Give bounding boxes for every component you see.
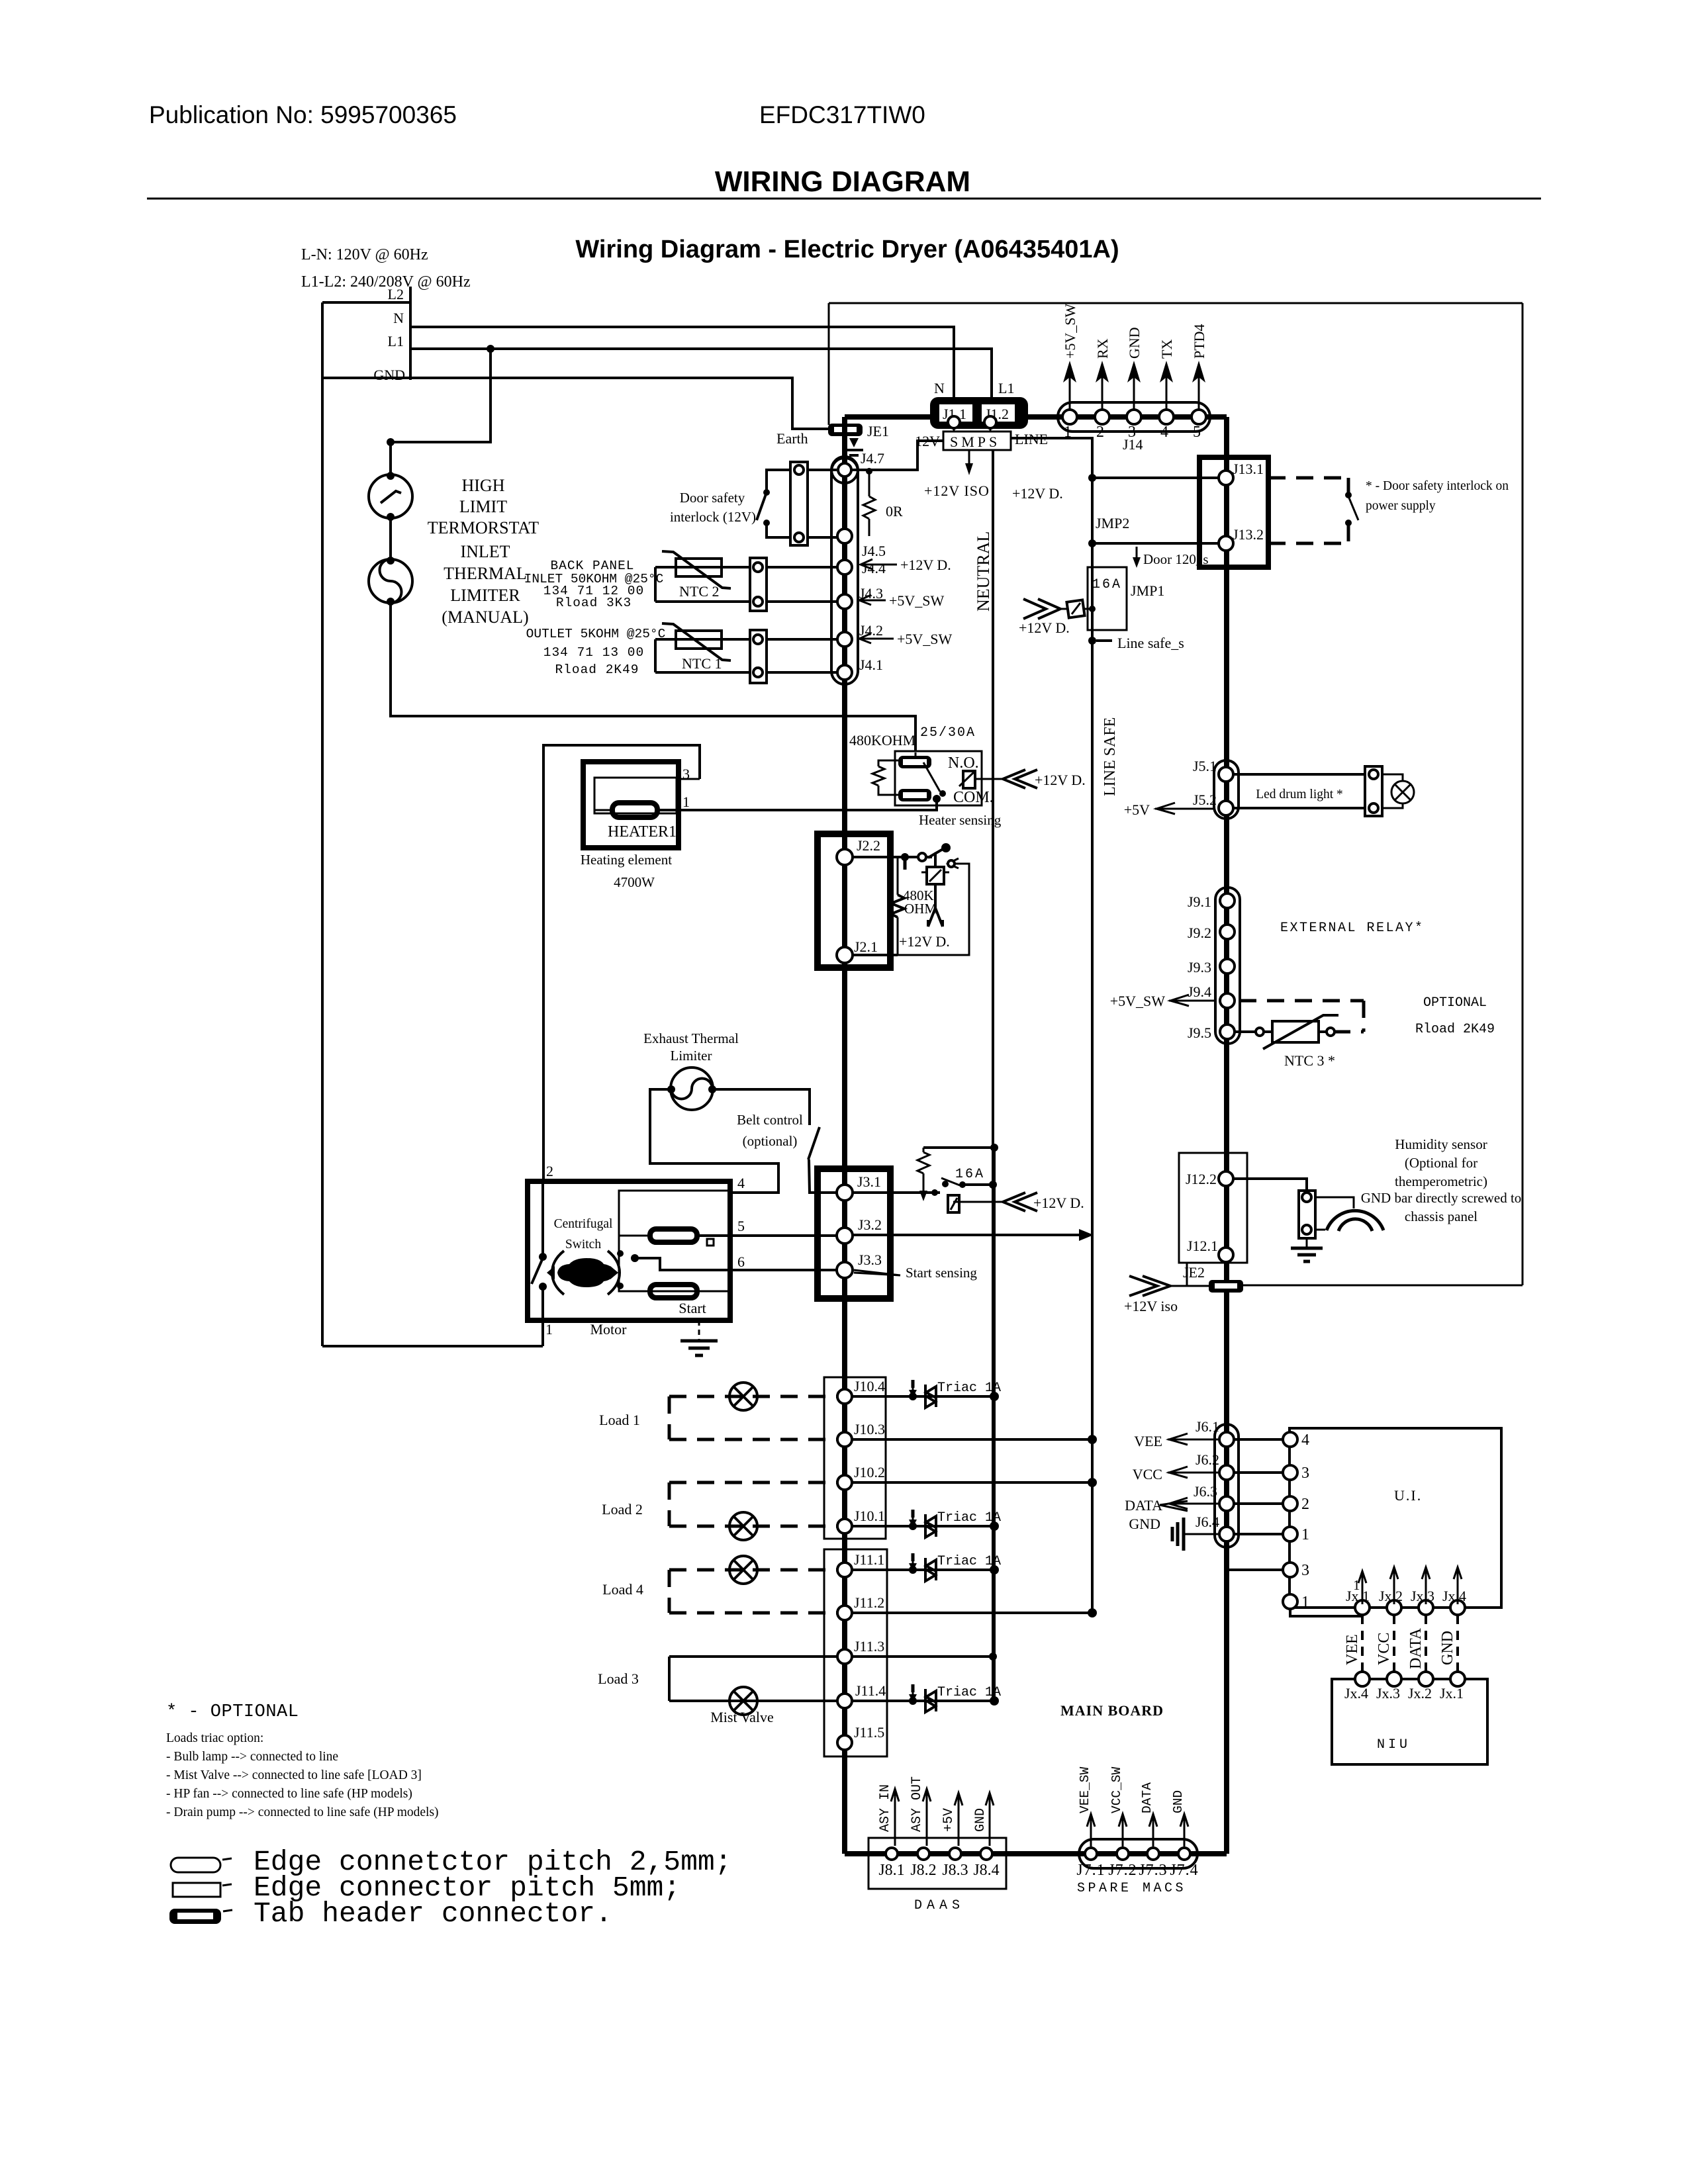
svg-text:+5V_SW: +5V_SW [1062,303,1078,359]
svg-text:1: 1 [682,794,690,810]
svg-text:BACK PANEL: BACK PANEL [550,559,634,573]
svg-text:GND: GND [1129,1516,1160,1532]
svg-text:+12V D.: +12V D. [1035,772,1086,788]
svg-text:J4.5: J4.5 [862,543,886,559]
svg-text:L1: L1 [998,380,1014,396]
svg-text:GND: GND [973,1808,988,1832]
svg-text:25/30A: 25/30A [920,725,976,741]
svg-text:16A: 16A [1092,577,1122,592]
svg-text:1: 1 [1301,1594,1309,1611]
svg-text:J9.3: J9.3 [1188,959,1211,976]
svg-text:J8.3: J8.3 [942,1862,968,1879]
svg-text:5: 5 [1193,424,1201,441]
svg-text:interlock (12V): interlock (12V) [670,509,756,525]
svg-text:Tab header connector.: Tab header connector. [254,1897,612,1930]
svg-text:JMP2: JMP2 [1096,515,1129,531]
svg-text:GND: GND [1171,1790,1186,1813]
svg-text:Wiring Diagram - Electric Drye: Wiring Diagram - Electric Dryer (A064354… [575,236,1119,263]
svg-text:Exhaust Thermal: Exhaust Thermal [643,1030,739,1046]
svg-text:5: 5 [737,1218,745,1234]
svg-text:Load 3: Load 3 [598,1670,639,1687]
svg-text:J8.4: J8.4 [973,1862,999,1879]
svg-text:+5V: +5V [1124,801,1150,818]
svg-text:J2.2: J2.2 [857,837,880,854]
svg-text:J3.3: J3.3 [858,1251,882,1268]
svg-text:SPARE MACS: SPARE MACS [1077,1881,1186,1896]
svg-text:Mist Valve: Mist Valve [710,1709,774,1725]
svg-text:(Optional for: (Optional for [1405,1155,1477,1171]
svg-text:VEE_SW: VEE_SW [1078,1766,1092,1813]
svg-text:(optional): (optional) [743,1133,798,1149]
svg-text:J13.1: J13.1 [1233,461,1264,477]
svg-text:Switch: Switch [565,1238,601,1251]
svg-text:Triac 1A: Triac 1A [937,1510,1001,1525]
svg-text:2: 2 [546,1163,553,1179]
svg-text:N: N [934,380,945,396]
svg-text:+5V: +5V [941,1808,957,1832]
svg-text:134 71 13 00: 134 71 13 00 [543,645,644,660]
svg-text:+12V ISO: +12V ISO [924,482,990,499]
svg-text:LINE SAFE: LINE SAFE [1102,717,1119,796]
svg-text:Limiter: Limiter [671,1048,712,1064]
svg-text:2: 2 [1096,424,1104,441]
svg-text:GND: GND [1439,1631,1456,1665]
svg-text:Centrifugal: Centrifugal [554,1217,613,1231]
svg-text:J7.2: J7.2 [1108,1862,1137,1879]
svg-text:power supply: power supply [1366,499,1436,513]
svg-text:J9.5: J9.5 [1188,1024,1211,1041]
svg-text:LIMITER: LIMITER [450,586,520,605]
svg-text:NTC 1: NTC 1 [682,655,722,672]
svg-text:16A: 16A [955,1167,985,1182]
svg-text:Rload 3K3: Rload 3K3 [556,596,632,610]
svg-text:J9.4: J9.4 [1188,983,1211,1000]
svg-text:INLET: INLET [460,542,510,561]
svg-text:J8.2: J8.2 [910,1862,936,1879]
svg-text:Start sensing: Start sensing [906,1265,977,1281]
svg-text:Humidity sensor: Humidity sensor [1395,1136,1487,1152]
svg-text:4: 4 [1160,424,1168,441]
svg-text:VCC_SW: VCC_SW [1109,1766,1124,1813]
svg-text:themperometric): themperometric) [1395,1173,1487,1189]
svg-text:Load 1: Load 1 [599,1412,640,1428]
svg-text:J10.3: J10.3 [854,1421,885,1437]
svg-text:* - Door safety interlock on: * - Door safety interlock on [1366,479,1509,493]
svg-text:12V: 12V [915,433,940,449]
svg-text:J9.2: J9.2 [1188,925,1211,941]
svg-text:J10.1: J10.1 [854,1508,885,1524]
svg-text:J2.1: J2.1 [854,938,878,955]
svg-text:J5.2: J5.2 [1193,792,1217,808]
svg-text:Door safety: Door safety [680,490,745,506]
svg-text:RX: RX [1094,338,1111,359]
svg-text:Load 2: Load 2 [602,1501,643,1518]
svg-text:Publication No: 5995700365: Publication No: 5995700365 [149,101,457,128]
svg-text:J7.1: J7.1 [1076,1862,1105,1879]
svg-text:J10.2: J10.2 [854,1464,885,1480]
svg-text:+5V_SW: +5V_SW [889,592,945,609]
svg-text:1: 1 [1301,1526,1309,1543]
svg-text:VEE: VEE [1134,1433,1162,1449]
svg-text:VCC: VCC [1133,1466,1162,1482]
svg-text:J11.1: J11.1 [854,1551,884,1568]
svg-text:Jx.4: Jx.4 [1344,1685,1368,1702]
svg-text:Triac 1A: Triac 1A [937,1554,1001,1569]
svg-text:Jx.2: Jx.2 [1408,1685,1432,1702]
svg-text:- Mist Valve --> connected to: - Mist Valve --> connected to line safe … [166,1768,422,1782]
svg-text:J12.1: J12.1 [1187,1238,1218,1254]
svg-text:Jx.2: Jx.2 [1379,1588,1403,1604]
svg-text:TX: TX [1158,340,1175,359]
svg-text:WIRING DIAGRAM: WIRING DIAGRAM [715,165,970,198]
svg-text:EFDC317TIW0: EFDC317TIW0 [759,101,925,128]
svg-text:J6.4: J6.4 [1196,1514,1219,1530]
svg-text:Jx.3: Jx.3 [1411,1588,1434,1604]
svg-text:NIU: NIU [1377,1737,1411,1752]
svg-text:Heating element: Heating element [581,852,672,868]
svg-text:4700W: 4700W [614,874,655,890]
svg-text:VEE: VEE [1344,1634,1361,1665]
svg-text:JMP1: JMP1 [1131,582,1164,599]
svg-text:ASY OUT: ASY OUT [910,1776,925,1832]
svg-text:J14: J14 [1123,436,1143,453]
svg-text:+12V D.: +12V D. [1012,485,1063,502]
svg-text:L1-L2: 240/208V @ 60Hz: L1-L2: 240/208V @ 60Hz [301,273,471,291]
svg-text:1: 1 [545,1321,553,1338]
svg-text:EXTERNAL RELAY*: EXTERNAL RELAY* [1280,921,1425,936]
svg-text:+12V iso: +12V iso [1124,1298,1178,1314]
svg-text:L2: L2 [388,286,404,302]
svg-text:Motor: Motor [590,1321,628,1338]
svg-text:MAIN BOARD: MAIN BOARD [1060,1702,1164,1719]
svg-text:GND bar directly screwed to: GND bar directly screwed to [1361,1190,1522,1206]
svg-text:Rload 2K49: Rload 2K49 [1415,1022,1495,1037]
svg-text:Loads triac option:: Loads triac option: [166,1731,263,1745]
svg-text:Led drum light *: Led drum light * [1256,788,1343,801]
svg-text:J6.2: J6.2 [1196,1451,1219,1468]
svg-text:- Drain pump --> connected to: - Drain pump --> connected to line safe … [166,1805,439,1819]
svg-text:HEATER1: HEATER1 [608,823,677,841]
svg-text:J11.4: J11.4 [855,1682,886,1699]
svg-text:SMPS: SMPS [950,433,1000,450]
svg-text:6: 6 [737,1253,745,1270]
svg-text:Triac 1A: Triac 1A [937,1685,1001,1700]
svg-text:J7.4: J7.4 [1170,1862,1198,1879]
svg-text:LIMIT: LIMIT [459,497,507,516]
svg-text:J6.1: J6.1 [1196,1418,1219,1435]
svg-text:Rload 2K49: Rload 2K49 [555,662,639,677]
svg-text:THERMAL: THERMAL [444,564,527,583]
svg-text:HIGH: HIGH [462,476,505,495]
svg-text:0R: 0R [886,503,903,520]
svg-text:J3.1: J3.1 [857,1173,881,1190]
svg-text:Load 4: Load 4 [602,1581,643,1598]
svg-text:J10.4: J10.4 [854,1378,885,1394]
svg-text:J5.1: J5.1 [1193,758,1217,774]
svg-text:1: 1 [1353,1577,1360,1593]
svg-text:GND: GND [1126,327,1143,359]
svg-text:+12V D.: +12V D. [1033,1195,1084,1211]
svg-text:L-N: 120V @ 60Hz: L-N: 120V @ 60Hz [301,246,428,263]
svg-text:U.I.: U.I. [1394,1487,1422,1504]
svg-text:+5V_SW: +5V_SW [897,631,953,647]
svg-text:+12V D.: +12V D. [1019,619,1070,636]
svg-text:- HP fan --> connected to line: - HP fan --> connected to line safe (HP … [166,1787,412,1801]
svg-text:N: N [393,310,404,326]
svg-text:GND: GND [373,367,405,383]
svg-text:(MANUAL): (MANUAL) [442,608,528,627]
svg-text:- Bulb lamp --> connected to l: - Bulb lamp --> connected to line [166,1750,338,1764]
svg-text:Start: Start [679,1300,706,1316]
svg-text:JE2: JE2 [1183,1264,1205,1281]
svg-text:+12V D.: +12V D. [899,933,950,950]
svg-text:J7.3: J7.3 [1139,1862,1167,1879]
svg-text:chassis panel: chassis panel [1405,1208,1477,1224]
svg-text:Belt control: Belt control [737,1112,803,1128]
svg-text:N.O.: N.O. [948,754,979,772]
svg-text:2: 2 [1301,1496,1309,1513]
svg-text:Triac 1A: Triac 1A [937,1381,1001,1396]
svg-text:TERMORSTAT: TERMORSTAT [428,518,539,537]
svg-text:DATA: DATA [1407,1627,1425,1669]
svg-text:+12V D.: +12V D. [900,557,951,573]
svg-text:480KOHM: 480KOHM [849,732,915,749]
svg-text:L1: L1 [388,333,404,349]
svg-text:J6.3: J6.3 [1194,1483,1217,1500]
svg-text:NEUTRAL: NEUTRAL [974,531,993,612]
svg-text:NTC 2: NTC 2 [679,583,720,600]
svg-text:JE1: JE1 [867,423,889,439]
svg-text:J11.2: J11.2 [854,1594,884,1611]
svg-text:Jx.4: Jx.4 [1442,1588,1466,1604]
svg-text:4: 4 [1301,1432,1309,1449]
svg-text:J9.1: J9.1 [1188,893,1211,910]
svg-text:3: 3 [1301,1465,1309,1482]
svg-text:Line safe_s: Line safe_s [1117,635,1184,651]
svg-text:+5V_SW: +5V_SW [1110,993,1166,1009]
svg-text:J12.2: J12.2 [1186,1171,1217,1187]
svg-text:Jx.3: Jx.3 [1376,1685,1400,1702]
svg-text:J8.1: J8.1 [878,1862,904,1879]
svg-text:Earth: Earth [776,430,808,447]
svg-text:Jx.1: Jx.1 [1440,1685,1464,1702]
svg-text:ASY IN: ASY IN [878,1784,893,1832]
svg-text:4: 4 [737,1175,745,1191]
svg-text:J11.3: J11.3 [854,1638,884,1655]
svg-text:J11.5: J11.5 [854,1724,884,1741]
svg-text:NTC 3 *: NTC 3 * [1284,1052,1335,1069]
svg-text:* - OPTIONAL: * - OPTIONAL [166,1702,299,1722]
svg-text:J4.1: J4.1 [859,657,883,673]
svg-text:Heater sensing: Heater sensing [919,812,1002,828]
svg-text:DATA: DATA [1125,1497,1162,1514]
svg-text:OUTLET 5KOHM @25°C: OUTLET 5KOHM @25°C [526,627,666,641]
svg-text:COM.: COM. [953,789,994,806]
svg-text:OPTIONAL: OPTIONAL [1423,995,1487,1011]
svg-text:J4.7: J4.7 [861,450,884,467]
svg-text:DAAS: DAAS [914,1898,964,1913]
svg-text:PTD4: PTD4 [1191,324,1207,359]
svg-text:3: 3 [1301,1562,1309,1579]
svg-text:J3.2: J3.2 [858,1216,882,1233]
svg-text:J13.2: J13.2 [1233,526,1264,543]
svg-text:DATA: DATA [1140,1782,1154,1813]
svg-text:VCC: VCC [1376,1633,1393,1665]
